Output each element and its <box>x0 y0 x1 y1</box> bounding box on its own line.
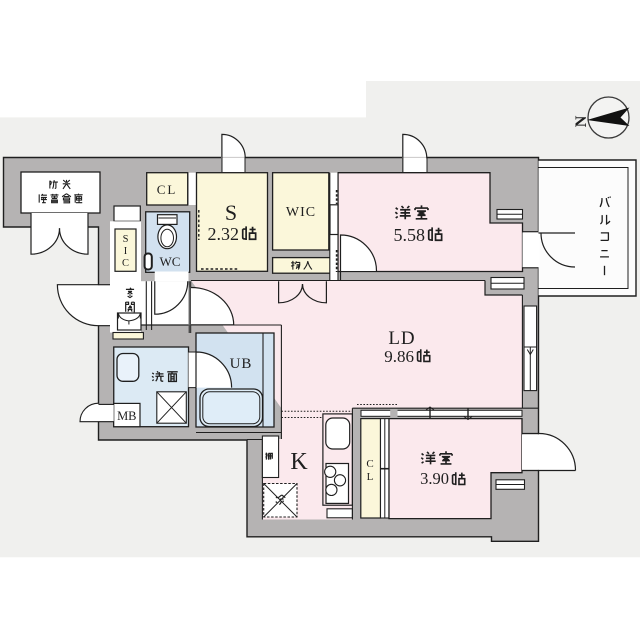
svg-text:WC: WC <box>160 254 181 269</box>
svg-text:WIC: WIC <box>286 205 316 220</box>
svg-text:C: C <box>366 458 373 470</box>
svg-text:5.58: 5.58 <box>394 225 426 245</box>
svg-text:I: I <box>124 246 128 257</box>
svg-text:C: C <box>122 258 129 269</box>
svg-text:S: S <box>123 234 129 245</box>
svg-text:L: L <box>367 471 374 483</box>
svg-text:K: K <box>290 449 308 475</box>
svg-text:9.86: 9.86 <box>384 347 414 366</box>
svg-text:S: S <box>225 200 237 225</box>
svg-text:2.32: 2.32 <box>208 224 240 244</box>
svg-text:UB: UB <box>230 356 253 372</box>
svg-text:3.90: 3.90 <box>420 469 449 488</box>
svg-text:N: N <box>573 115 590 127</box>
svg-text:CL: CL <box>157 182 178 197</box>
svg-text:LD: LD <box>388 328 415 349</box>
svg-text:MB: MB <box>117 409 136 423</box>
